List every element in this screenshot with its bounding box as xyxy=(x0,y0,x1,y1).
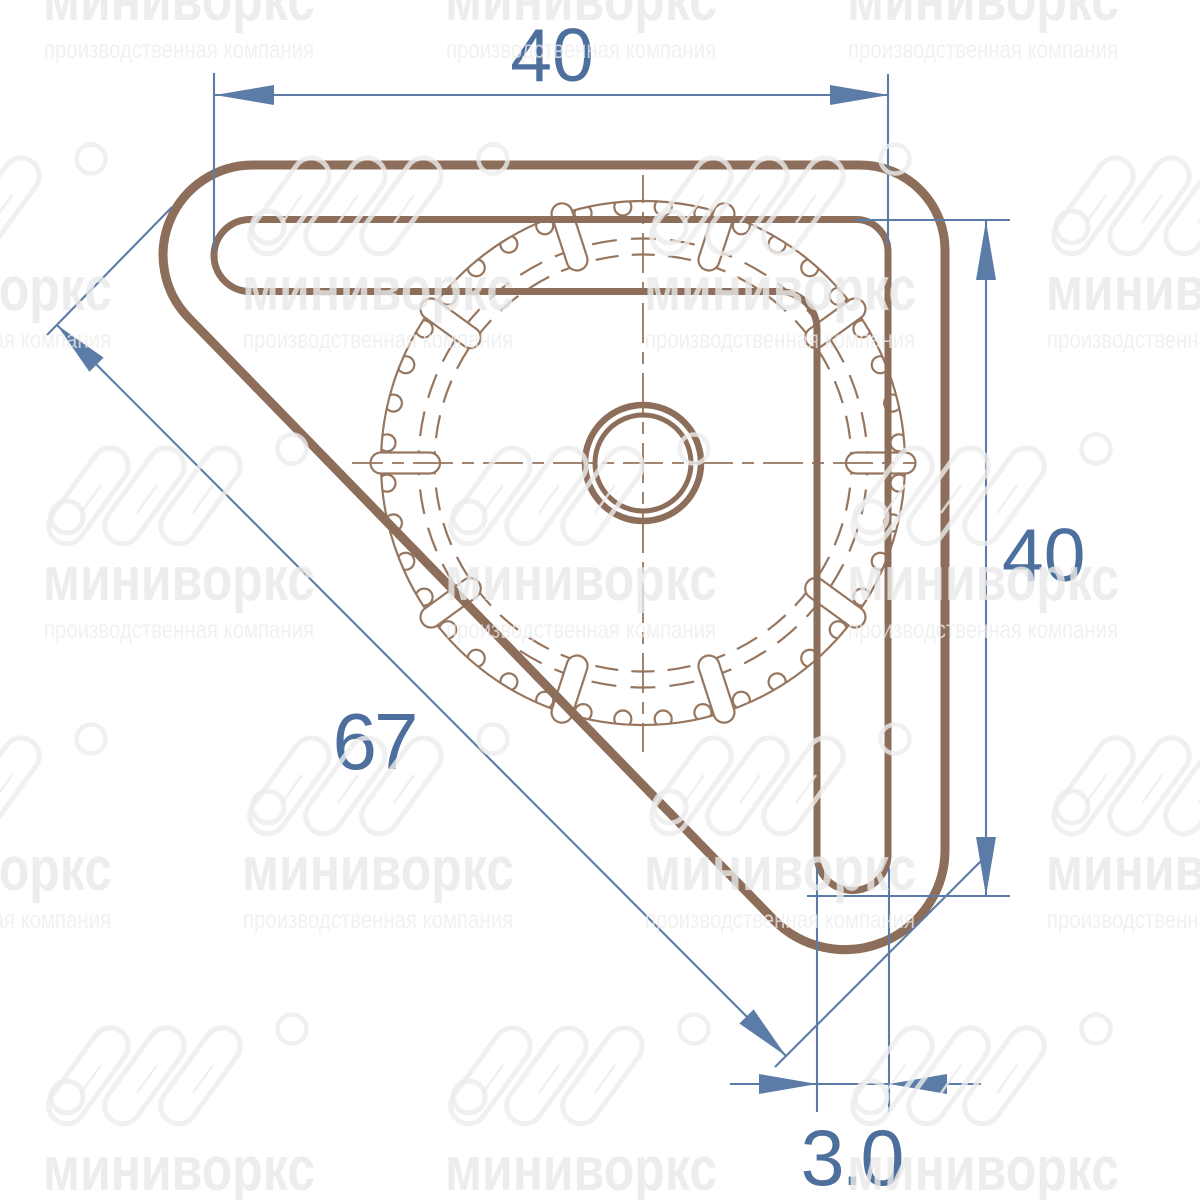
svg-text:миниворкс: миниворкс xyxy=(1046,835,1200,904)
svg-text:производственная компания: производственная компания xyxy=(0,326,111,354)
svg-text:миниворкс: миниворкс xyxy=(445,545,717,614)
svg-text:производственная компания: производственная компания xyxy=(243,326,513,354)
svg-text:миниворкс: миниворкс xyxy=(242,835,514,904)
svg-text:производственная компания: производственная компания xyxy=(645,906,915,934)
svg-text:миниворкс: миниворкс xyxy=(644,255,916,324)
svg-text:миниворкс: миниворкс xyxy=(43,0,315,34)
svg-text:миниворкс: миниворкс xyxy=(847,1135,1119,1200)
svg-text:производственная компания: производственная компания xyxy=(1047,906,1200,934)
svg-text:миниворкс: миниворкс xyxy=(644,835,916,904)
svg-text:производственная компания: производственная компания xyxy=(645,326,915,354)
svg-text:миниворкс: миниворкс xyxy=(847,545,1119,614)
svg-text:миниворкс: миниворкс xyxy=(242,255,514,324)
svg-text:миниворкс: миниворкс xyxy=(0,835,112,904)
svg-text:производственная компания: производственная компания xyxy=(848,36,1118,64)
svg-text:производственная компания: производственная компания xyxy=(44,36,314,64)
svg-text:миниворкс: миниворкс xyxy=(445,1135,717,1200)
svg-text:миниворкс: миниворкс xyxy=(43,545,315,614)
svg-text:производственная компания: производственная компания xyxy=(243,906,513,934)
svg-text:производственная компания: производственная компания xyxy=(446,616,716,644)
svg-text:миниворкс: миниворкс xyxy=(847,0,1119,34)
svg-text:миниворкс: миниворкс xyxy=(0,255,112,324)
svg-text:производственная компания: производственная компания xyxy=(44,616,314,644)
svg-text:производственная компания: производственная компания xyxy=(0,906,111,934)
svg-text:миниворкс: миниворкс xyxy=(445,0,717,34)
svg-text:производственная компания: производственная компания xyxy=(446,36,716,64)
svg-text:миниворкс: миниворкс xyxy=(1046,255,1200,324)
svg-text:производственная компания: производственная компания xyxy=(848,616,1118,644)
svg-text:миниворкс: миниворкс xyxy=(43,1135,315,1200)
svg-text:производственная компания: производственная компания xyxy=(1047,326,1200,354)
